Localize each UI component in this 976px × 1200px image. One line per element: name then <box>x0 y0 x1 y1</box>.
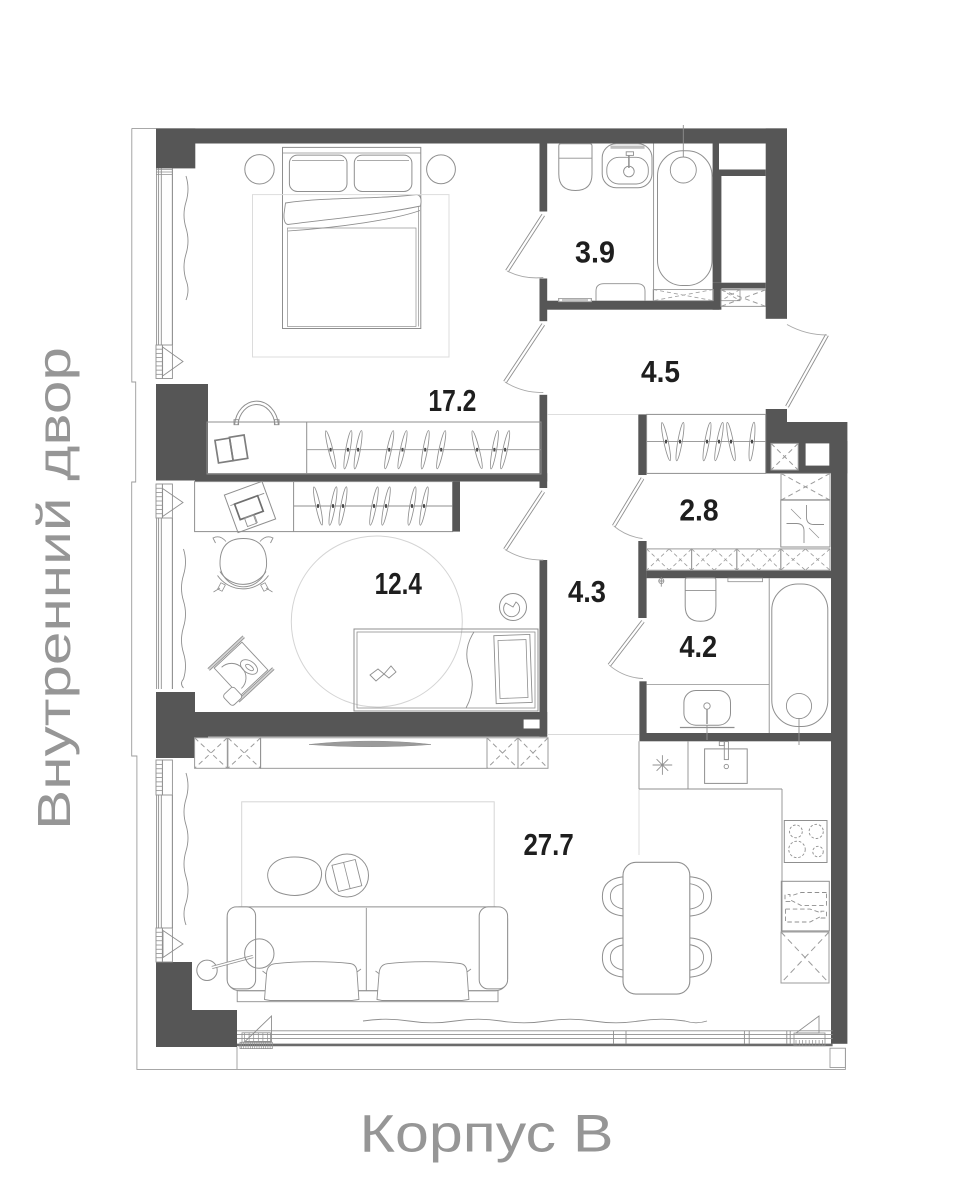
svg-text:4.3: 4.3 <box>568 574 606 609</box>
svg-text:Корпус В: Корпус В <box>360 1105 614 1164</box>
svg-text:12.4: 12.4 <box>375 566 423 601</box>
svg-text:Внутренний двор: Внутренний двор <box>28 347 80 830</box>
svg-text:17.2: 17.2 <box>428 383 476 418</box>
svg-text:4.5: 4.5 <box>641 354 680 389</box>
svg-text:4.2: 4.2 <box>679 629 717 664</box>
svg-text:27.7: 27.7 <box>523 827 573 862</box>
svg-text:3.9: 3.9 <box>575 235 615 270</box>
svg-text:2.8: 2.8 <box>679 493 718 528</box>
